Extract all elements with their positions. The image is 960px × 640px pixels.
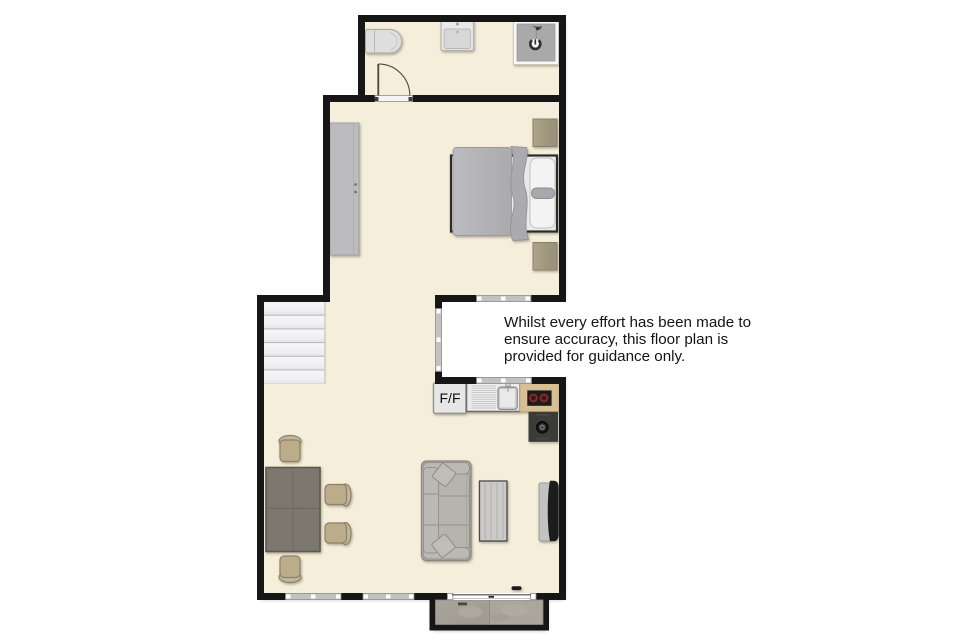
svg-text:provided for guidance only.: provided for guidance only. — [504, 348, 685, 365]
svg-text:Whilst every effort has been m: Whilst every effort has been made to — [504, 314, 751, 331]
svg-text:ensure accuracy, this floor pl: ensure accuracy, this floor plan is — [504, 331, 729, 348]
svg-text:F/F: F/F — [440, 390, 461, 406]
